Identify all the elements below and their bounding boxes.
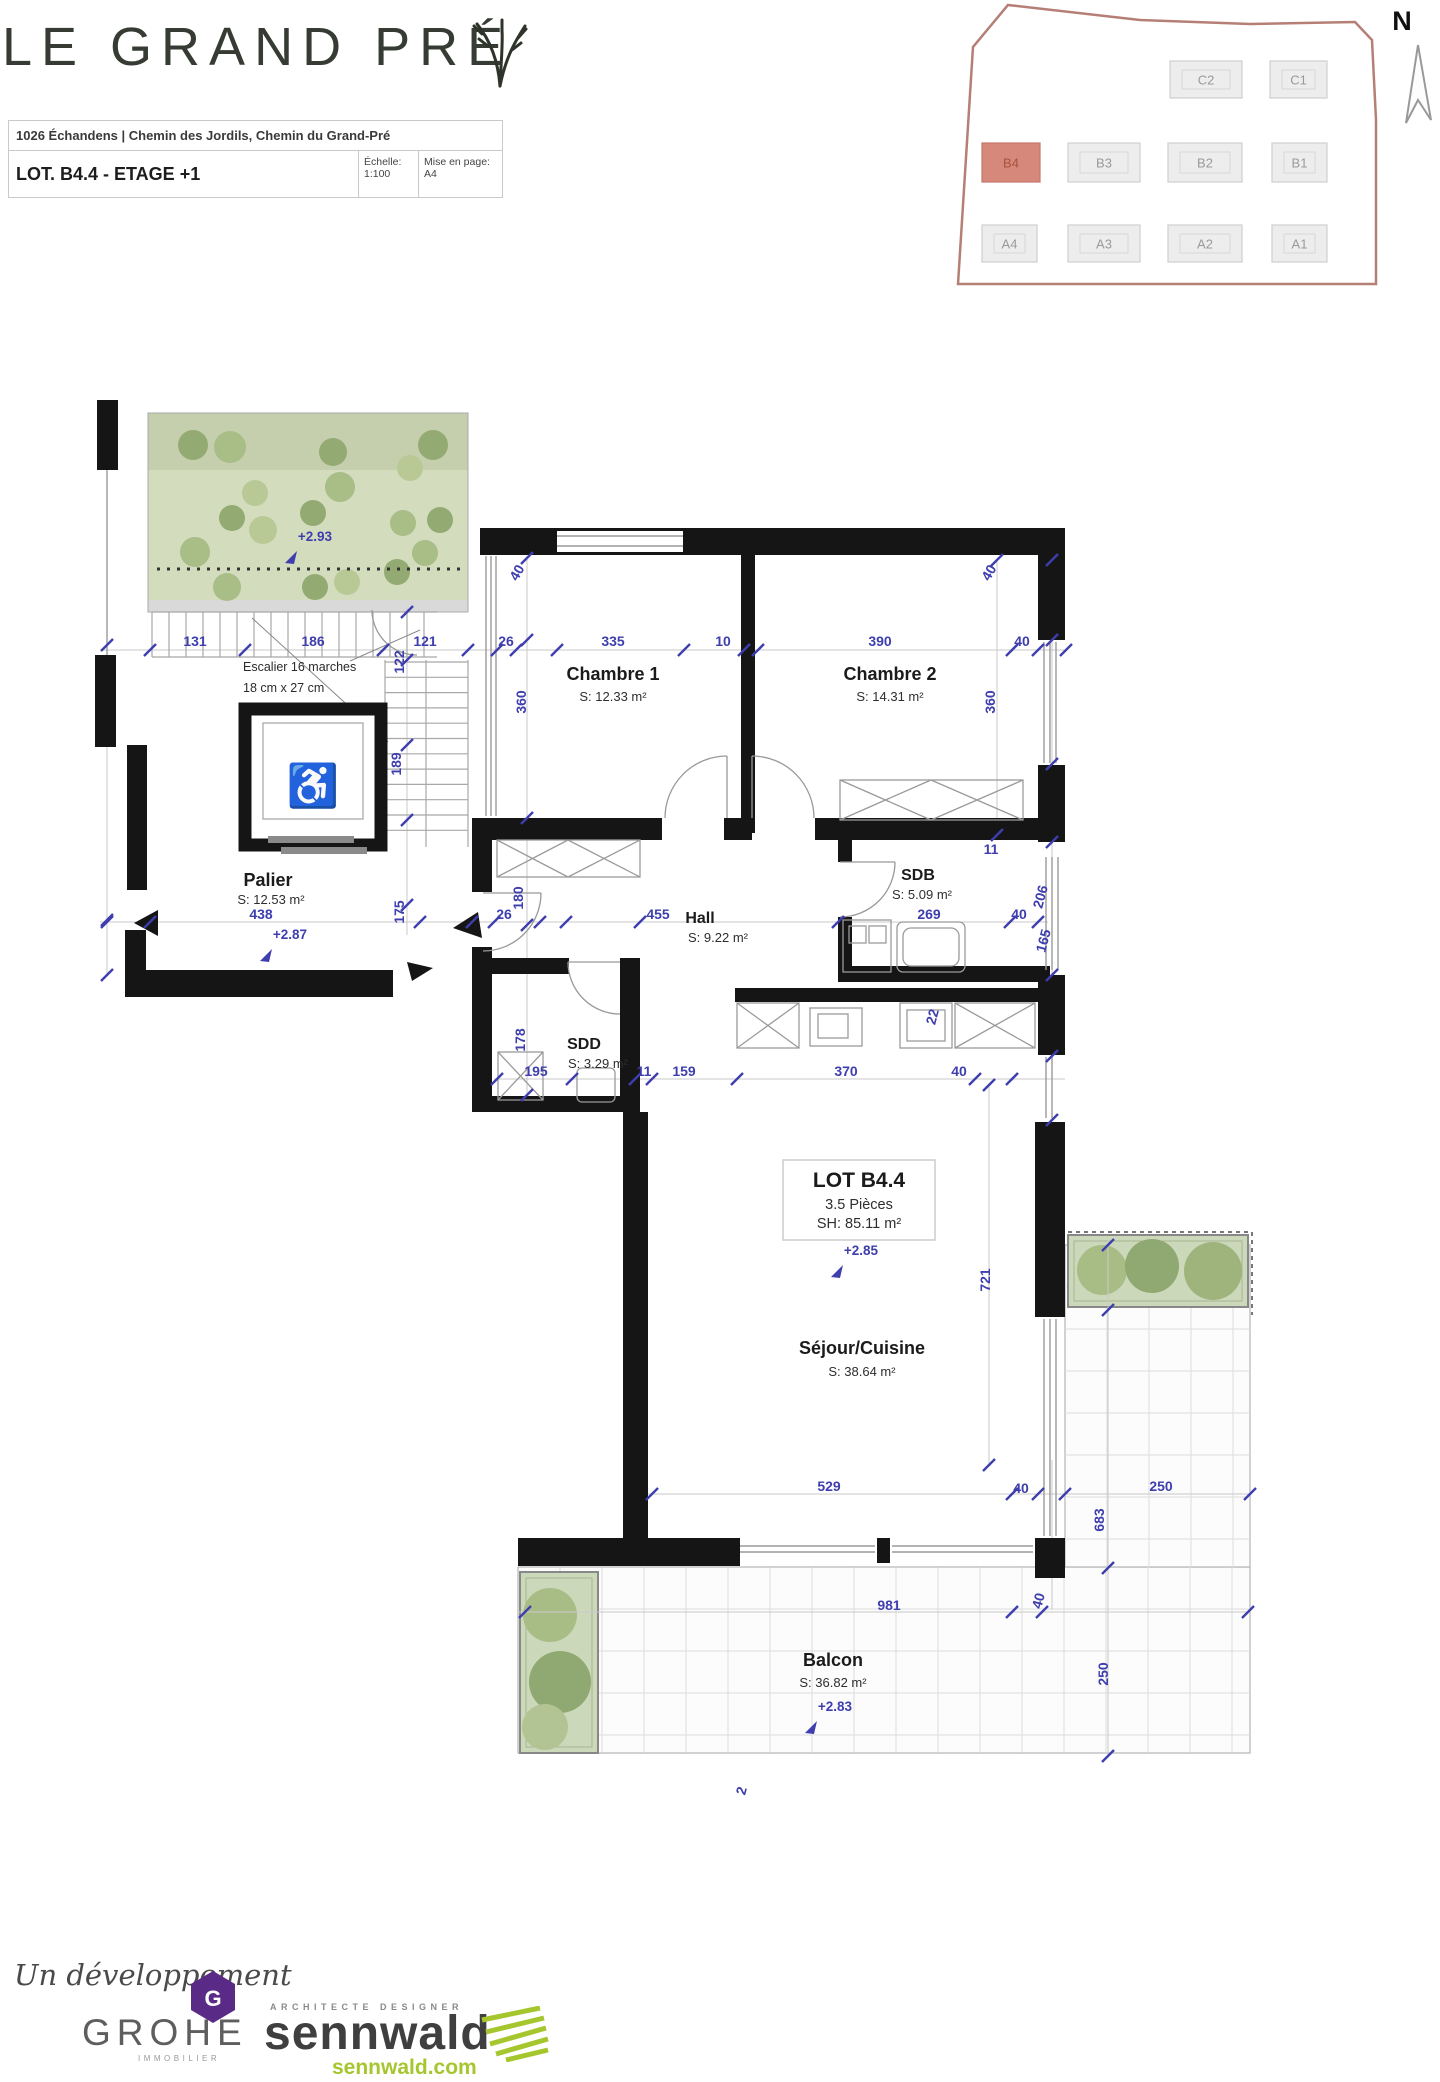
dimension-label: 721 [977,1268,993,1292]
north-label: N [1392,6,1412,36]
stair-note-line1: Escalier 16 marches [243,660,356,674]
floor-plan-page: LE GRAND PRÉ 1026 Échandens | Chemin des… [0,0,1440,2082]
site-lot-label: B3 [1096,156,1112,171]
room-name: SDD [567,1036,601,1053]
wall [623,1112,648,1542]
tree [390,510,416,536]
elevation-label: +2.83 [818,1699,853,1714]
dimension-label: 131 [183,633,207,649]
plant-sprig-icon [474,20,526,86]
elevation-marker-icon [260,949,272,962]
site-lot-label: B4 [1003,156,1019,171]
lot-box-pieces: 3.5 Pièces [825,1197,893,1213]
wall [125,970,393,997]
wall [838,917,852,967]
dimension-label: 206 [1029,883,1051,910]
wall [1035,1538,1065,1578]
room-name: Balcon [803,1650,863,1670]
dimension-label: 26 [498,633,514,649]
room-name: Chambre 2 [843,664,936,684]
room-area: S: 12.33 m² [579,689,647,704]
tree [319,438,347,466]
sennwald-website: sennwald.com [332,2056,477,2080]
wall [1038,555,1065,640]
wall [741,555,755,833]
tree [427,507,453,533]
elevation-label: +2.87 [273,927,307,942]
dimension-label: 186 [301,633,325,649]
dimension-label: 683 [1091,1508,1107,1532]
room-area: S: 14.31 m² [856,689,924,704]
grohe-badge-letter: G [204,1986,221,2011]
elevation-marker-icon [831,1265,843,1278]
wall [877,1538,890,1563]
dimension-label: 40 [1014,633,1030,649]
dimension-label: 360 [982,690,998,714]
room-name: Hall [685,910,714,927]
dimension-label: 175 [391,900,407,924]
wall [472,818,492,892]
dimension-label: 360 [513,690,529,714]
garden-terrace [148,413,468,612]
dimension-label: 269 [917,906,941,922]
dimension-label: 40 [1011,906,1027,922]
dimension-label: 159 [672,1063,696,1079]
grohe-logo-text: GROHE [82,2012,248,2054]
site-lot-label: C1 [1290,73,1307,88]
tree [325,472,355,502]
wall [1038,975,1065,1055]
tree [334,569,360,595]
wall [838,966,1050,982]
dimension-label: 122 [391,650,407,674]
tree [242,480,268,506]
site-lot-label: A1 [1292,237,1308,252]
lot-box-surface: SH: 85.11 m² [817,1216,902,1232]
floor-plan-drawing: C2C1B4B3B2B1A4A3A2A1 N [0,0,1440,2082]
dimension-label: 455 [646,906,670,922]
wall [95,655,116,747]
room-area: S: 5.09 m² [892,887,953,902]
tree [249,516,277,544]
tree [302,574,328,600]
room-area: S: 38.64 m² [828,1364,896,1379]
wall [620,958,640,1112]
dimension-label: 370 [834,1063,858,1079]
dimension-label: 189 [388,752,404,776]
elevator: ♿ [245,709,381,854]
elevation-label: +2.93 [298,529,333,544]
balcony-planter-right [1068,1235,1248,1307]
wall [518,1538,740,1566]
site-map: C2C1B4B3B2B1A4A3A2A1 N [958,5,1431,284]
room-area: S: 36.82 m² [799,1675,867,1690]
wheelchair-icon: ♿ [287,761,339,810]
north-needle-icon [1406,45,1431,123]
dimension-label: 390 [868,633,892,649]
dimension-label: 250 [1149,1478,1173,1494]
room-name: Séjour/Cuisine [799,1338,925,1358]
site-lot-label: C2 [1198,73,1215,88]
room-name: Palier [243,870,292,890]
dimension-label: 40 [978,562,1000,584]
dimension-label: 250 [1095,1662,1111,1686]
sennwald-stripes-icon [478,2006,550,2062]
dimension-label: 529 [817,1478,841,1494]
tree [300,500,326,526]
dimension-label: 11 [984,841,999,857]
sennwald-logo-text: sennwald [264,2006,491,2061]
wall [724,818,752,840]
room-name: SDB [901,867,935,884]
wall [472,958,569,974]
wall [838,840,852,862]
developer-script-text: Un développement [14,1958,292,1992]
dimension-label: 180 [510,886,526,910]
tree [418,430,448,460]
room-name: Chambre 1 [566,664,659,684]
tree [214,431,246,463]
stair-note-line2: 18 cm x 27 cm [243,681,324,695]
dimension-label: 10 [715,633,731,649]
site-lot-label: A2 [1197,237,1213,252]
dimension-label: 981 [877,1597,901,1613]
dimension-label: 40 [951,1063,967,1079]
elevation-label: +2.85 [844,1243,879,1258]
wall [480,818,662,840]
dimension-label: 2 [732,1785,750,1797]
wall [127,745,147,890]
windows [107,470,1058,1552]
wall [735,988,1038,1002]
grohe-subtitle: IMMOBILIER [138,2054,220,2063]
dimension-label: 178 [512,1028,528,1052]
lot-box-title: LOT B4.4 [813,1169,906,1192]
dimension-label: 438 [249,906,273,922]
dimension-label: 11 [637,1063,652,1079]
dimension-label: 40 [1013,1480,1029,1496]
site-lot-label: B1 [1292,156,1308,171]
tree [178,430,208,460]
room-area: S: 9.22 m² [688,930,749,945]
lot-info-box: LOT B4.4 3.5 Pièces SH: 85.11 m² [783,1160,935,1240]
dimension-label: 165 [1032,927,1054,954]
tree [219,505,245,531]
dimension-label: 40 [506,562,528,584]
wall [1038,765,1065,842]
tree [213,573,241,601]
room-area: S: 3.29 m² [568,1056,629,1071]
site-lot-label: B2 [1197,156,1213,171]
room-area: S: 12.53 m² [237,892,305,907]
tree [397,455,423,481]
dimension-label: 195 [524,1063,548,1079]
tree [180,537,210,567]
wall [1035,1122,1065,1317]
dimension-label: 121 [413,633,437,649]
footer: Un développement G GROHE IMMOBILIER ARCH… [0,1930,700,2082]
wall [815,818,1038,840]
wall [97,400,118,470]
balcony-planter-left [520,1572,598,1753]
dimension-label: 335 [601,633,625,649]
site-lot-label: A3 [1096,237,1112,252]
tree [384,559,410,585]
site-lot-label: A4 [1002,237,1018,252]
tree [412,540,438,566]
